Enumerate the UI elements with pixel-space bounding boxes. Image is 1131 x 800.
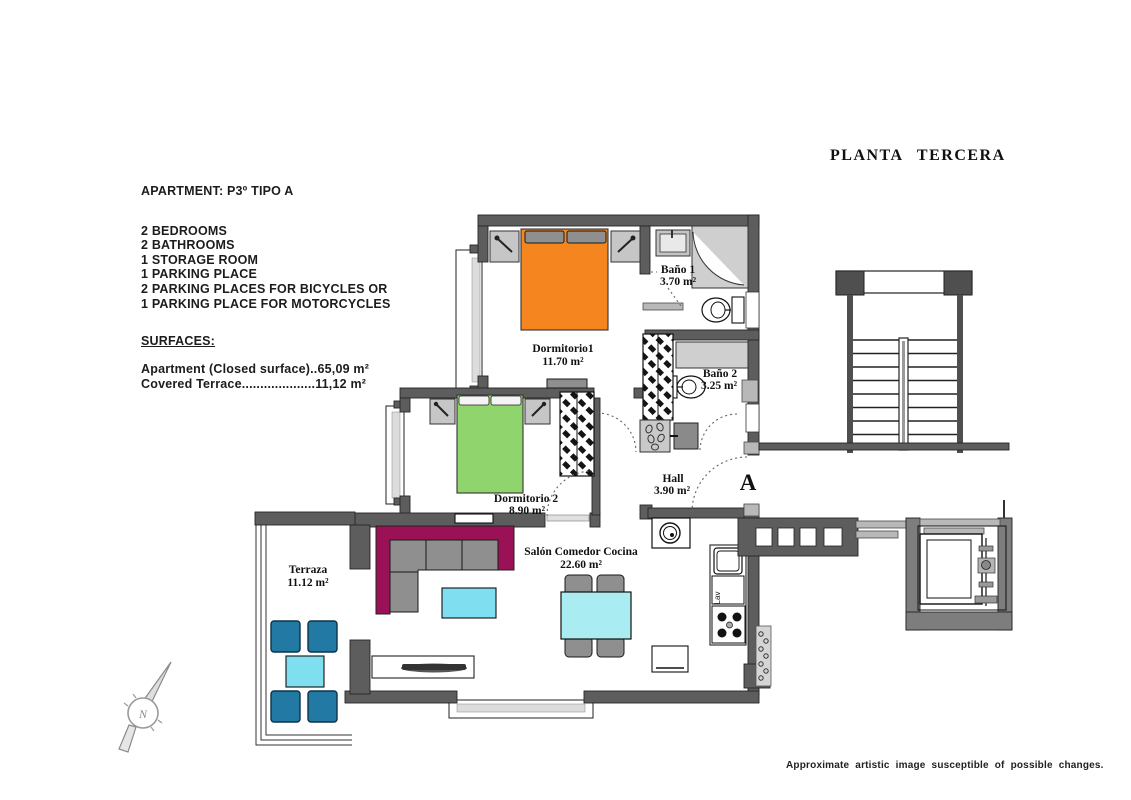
shower-icon: [692, 226, 748, 288]
terrace-table-icon: [286, 656, 324, 687]
elevator: [906, 500, 1012, 630]
dormitorio1-furniture: [490, 229, 640, 330]
room-label-bano2: Baño 2: [703, 368, 737, 380]
lav-label: Lav: [713, 592, 722, 605]
north-compass-icon: N: [119, 662, 171, 752]
bano2-fixtures: [640, 334, 748, 452]
pillow-icon: [525, 231, 564, 243]
nightstand-icon: [490, 231, 519, 262]
room-label-bano1: Baño 1: [661, 264, 695, 276]
room-label-salon: Salón Comedor Cocina: [524, 546, 638, 558]
room-label-dormitorio2: Dormitorio 2: [494, 493, 558, 505]
sink-icon: [656, 230, 690, 256]
wardrobe-icon: [560, 392, 594, 476]
terrace-chair-icon: [308, 621, 337, 652]
pillow-icon: [491, 396, 521, 405]
chair-icon: [597, 637, 624, 657]
fridge-icon: [652, 646, 688, 672]
pillow-icon: [567, 231, 606, 243]
room-area-bano1: 3.70 m²: [660, 276, 697, 288]
floorplan-drawing: Lav: [0, 0, 1131, 800]
staircase: [759, 271, 1009, 453]
cabinet-lav: Lav: [712, 576, 744, 604]
chair-icon: [565, 637, 592, 657]
terrace-chair-icon: [308, 691, 337, 722]
tv-unit-icon: [372, 656, 474, 678]
drain-strip: [756, 626, 771, 686]
terrace-chair-icon: [271, 691, 300, 722]
terrace-chair-icon: [271, 621, 300, 652]
room-area-bano2: 3.25 m²: [701, 380, 738, 392]
room-label-dormitorio1: Dormitorio1: [532, 343, 594, 355]
dormitorio2-furniture: [430, 392, 594, 493]
room-area-salon: 22.60 m²: [560, 559, 602, 571]
room-label-hall: Hall: [662, 473, 683, 485]
floorplan-sheet: APARTMENT: P3º TIPO A 2 BEDROOMS 2 BATHR…: [0, 0, 1131, 800]
room-label-terraza: Terraza: [289, 564, 328, 576]
hall-wardrobe-icon: [643, 334, 673, 420]
pillow-icon: [459, 396, 489, 405]
window-dormitorio1: [456, 245, 484, 394]
corridor-window-band: [738, 518, 906, 556]
room-area-dormitorio1: 11.70 m²: [542, 356, 584, 368]
stove-icon: [712, 606, 745, 643]
toilet-icon: [702, 297, 744, 323]
nightstand-icon: [611, 231, 640, 262]
entrance-a-label: A: [740, 470, 757, 495]
room-area-terraza: 11.12 m²: [287, 577, 329, 589]
window-dormitorio2: [386, 401, 406, 505]
coffee-table-icon: [442, 588, 496, 618]
terrace-furniture: [271, 621, 337, 722]
storage-unit-icon: [640, 420, 670, 452]
boiler-icon: [670, 423, 698, 449]
landing-wall: [759, 443, 1009, 450]
dining-table-icon: [561, 592, 631, 639]
bed-icon: [457, 395, 523, 493]
room-area-dormitorio2: 8.90 m²: [509, 505, 546, 517]
compass-n-label: N: [138, 707, 148, 721]
dining-set: [561, 575, 631, 657]
shower-tray-icon: [676, 342, 748, 368]
window-salon: [449, 700, 593, 718]
bed-icon: [521, 229, 608, 330]
room-area-hall: 3.90 m²: [654, 485, 691, 497]
washing-machine-icon: [652, 518, 690, 548]
